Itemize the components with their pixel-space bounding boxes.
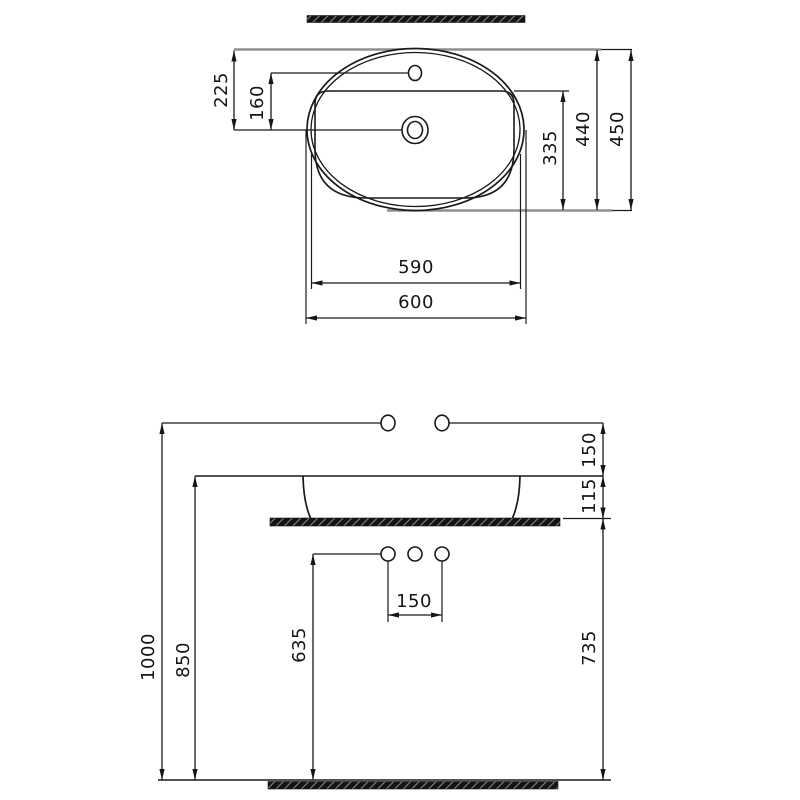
dim-label-635: 635 [291, 627, 309, 663]
dim-label-150-upper: 150 [581, 432, 599, 468]
wall-faucet-hole-right [435, 415, 449, 431]
drain-hole-front [408, 547, 422, 561]
dim-label-115: 115 [581, 478, 599, 514]
dim-label-440: 440 [575, 111, 593, 147]
countertop-section-bar [270, 518, 560, 526]
drawing-linework [0, 0, 800, 800]
supply-hole-left [381, 547, 395, 561]
basin-profile-left [303, 476, 311, 518]
wall-section-bar [307, 16, 525, 23]
dim-label-450: 450 [609, 111, 627, 147]
dim-label-850: 850 [175, 642, 193, 678]
dim-label-335: 335 [542, 130, 560, 166]
dim-label-160: 160 [249, 85, 267, 121]
basin-profile-right [513, 476, 521, 518]
dim-label-590: 590 [398, 259, 434, 277]
drain-hole-outer [402, 117, 428, 144]
floor-section-bar [268, 782, 558, 790]
dim-label-1000: 1000 [140, 633, 158, 681]
supply-hole-right [435, 547, 449, 561]
dim-label-150-lower: 150 [396, 593, 432, 611]
dim-label-600: 600 [398, 294, 434, 312]
dim-label-225: 225 [213, 72, 231, 108]
wall-faucet-hole-left [381, 415, 395, 431]
faucet-hole [409, 66, 422, 81]
dim-label-735: 735 [581, 630, 599, 666]
basin-technical-drawing: 225 160 335 440 450 590 600 150 115 1000… [0, 0, 800, 800]
